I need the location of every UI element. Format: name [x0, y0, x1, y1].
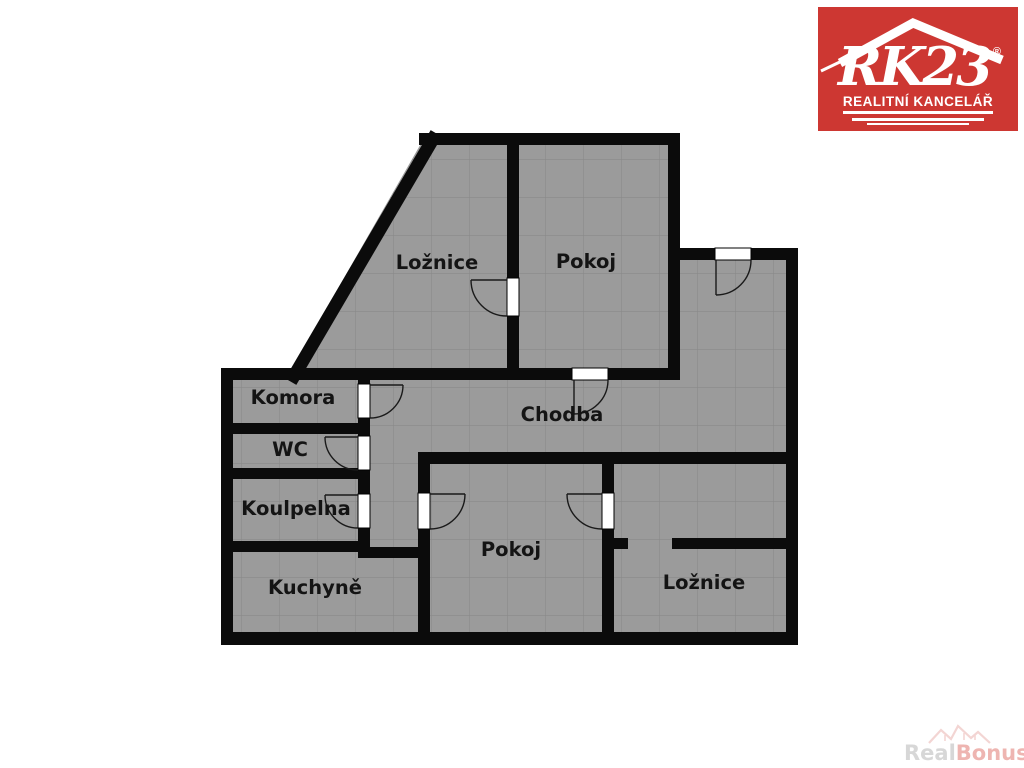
- door-opening: [358, 494, 370, 528]
- room-label-komora: Komora: [251, 386, 336, 409]
- registered-mark: ®: [993, 46, 1001, 58]
- wall-pokoj-hall-a: [602, 452, 614, 493]
- door-opening: [715, 248, 751, 260]
- wall-top: [419, 133, 680, 145]
- wall-loznice-pokoj-a: [507, 133, 519, 278]
- watermark-bonus: Bonus: [956, 741, 1024, 765]
- wall-entry-left: [668, 248, 715, 260]
- wall-chodba-top-b: [608, 368, 680, 380]
- wall-strip-bottom: [362, 547, 420, 558]
- wall-leftcol-a: [358, 368, 370, 384]
- wall-koulpelna-bottom: [221, 541, 363, 552]
- door-opening: [572, 368, 608, 380]
- watermark-real: Real: [904, 741, 956, 765]
- wall-chodba-top-a: [221, 368, 572, 380]
- logo-tagline: REALITNÍ KANCELÁŘ: [818, 94, 1018, 109]
- wall-komora-bottom: [221, 423, 370, 434]
- wall-hall-stub: [614, 538, 628, 549]
- wall-loznice-pokoj-b: [507, 316, 519, 380]
- room-label-koulpelna: Koulpelna: [241, 497, 351, 520]
- logo-rule: [867, 123, 969, 126]
- watermark-text: RealBonus.cz: [904, 743, 1024, 767]
- wall-wc-bottom: [221, 468, 370, 479]
- room-label-loznice-bottom: Ložnice: [663, 571, 746, 594]
- wall-pokoj-hall-b: [602, 529, 614, 645]
- room-label-chodba: Chodba: [521, 403, 604, 426]
- room-label-loznice-top: Ložnice: [396, 251, 479, 274]
- logo-rule: [852, 118, 984, 121]
- door-opening: [507, 278, 519, 316]
- wall-kuchyne-right-b: [418, 529, 430, 645]
- room-label-wc: WC: [272, 438, 308, 461]
- door-opening: [418, 493, 430, 529]
- door-opening: [602, 493, 614, 529]
- door-opening: [358, 436, 370, 470]
- room-label-pokoj-bottom: Pokoj: [481, 538, 541, 561]
- room-label-pokoj-top: Pokoj: [556, 250, 616, 273]
- wall-outer-bottom: [221, 632, 798, 645]
- wall-outer-left: [221, 368, 233, 645]
- realbonus-watermark: RealBonus.cz: [898, 719, 1022, 767]
- floorplan-canvas: Ložnice Pokoj Komora Chodba WC Koulpelna…: [0, 0, 1024, 768]
- wall-outer-right: [786, 248, 798, 645]
- logo-brand-text: RK23: [838, 36, 990, 98]
- wall-loznice-bottom-top: [672, 538, 798, 549]
- rk23-logo: RK23® REALITNÍ KANCELÁŘ: [818, 7, 1018, 131]
- logo-rule: [843, 111, 993, 114]
- door-opening: [358, 384, 370, 418]
- room-label-kuchyne: Kuchyně: [268, 576, 362, 599]
